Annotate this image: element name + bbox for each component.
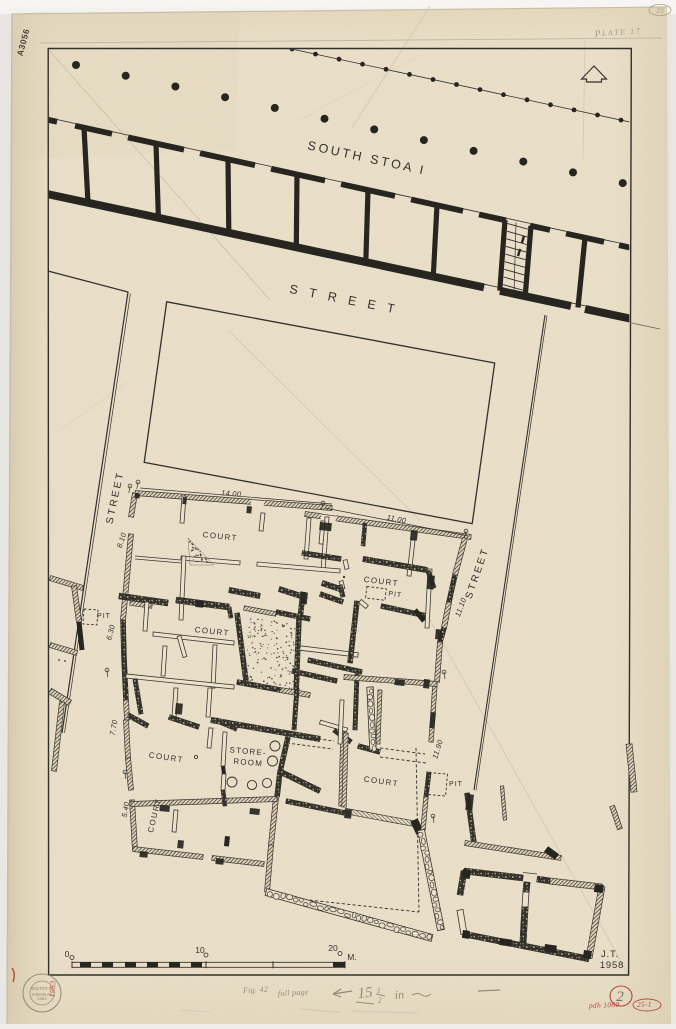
svg-text:2: 2: [377, 996, 382, 1005]
svg-text:M.: M.: [347, 952, 356, 962]
svg-text:in: in: [394, 987, 405, 1002]
svg-text:Fig. 42: Fig. 42: [242, 985, 269, 995]
svg-text:0: 0: [65, 949, 70, 959]
svg-text:full page: full page: [278, 987, 309, 998]
svg-text:15: 15: [357, 985, 374, 1002]
svg-text:14.00: 14.00: [221, 488, 243, 499]
svg-text:J.T.: J.T.: [601, 949, 619, 960]
svg-text:25-1: 25-1: [637, 999, 652, 1009]
svg-text:10: 10: [195, 945, 205, 955]
svg-text:PIT: PIT: [97, 613, 111, 620]
svg-text:23: 23: [656, 6, 664, 15]
svg-text:pdh 1060: pdh 1060: [588, 1000, 620, 1010]
svg-text:1958: 1958: [600, 960, 624, 971]
svg-text:20: 20: [328, 943, 338, 953]
svg-text:PIT: PIT: [449, 781, 463, 788]
svg-text:1960: 1960: [37, 996, 48, 1001]
svg-text:1953: 1953: [47, 980, 57, 998]
svg-text:1: 1: [376, 986, 381, 995]
